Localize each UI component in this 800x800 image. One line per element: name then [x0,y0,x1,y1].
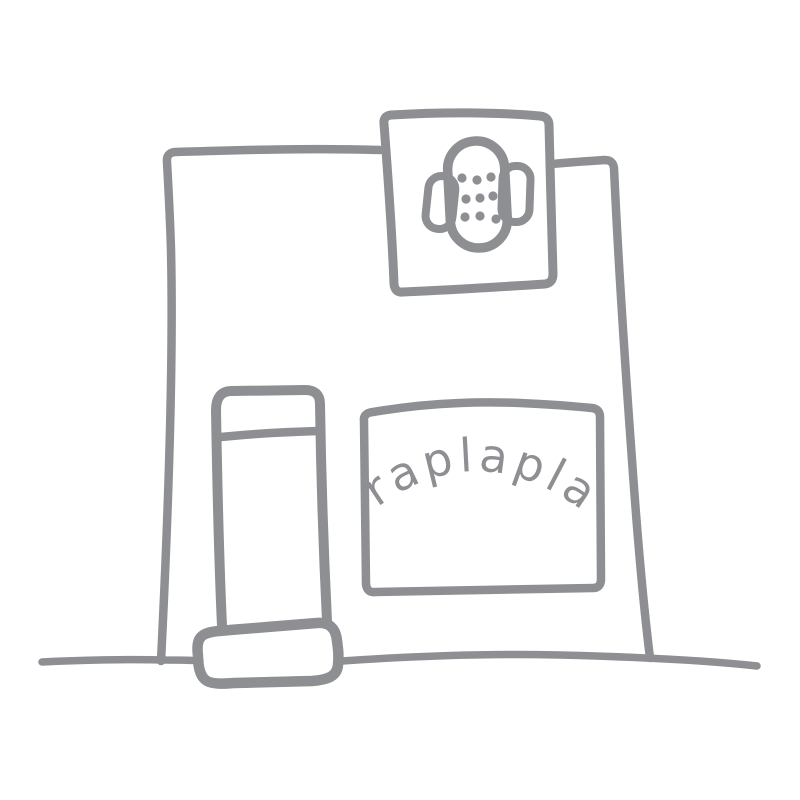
bandage-dot [486,172,495,181]
bandage-dot [488,191,497,200]
ground-line-right [342,654,757,666]
column-outline [216,390,327,626]
ground-line-left [42,660,200,662]
bandage-dot [475,211,484,220]
storefront-drawing: raplapla [0,0,800,800]
bandage-dot [461,194,470,203]
column-top-divider [221,431,318,437]
column-base [197,623,338,684]
bandage-dot [457,173,466,182]
bandage-dot [460,212,469,221]
bandage-dot [475,193,484,202]
shop-name-textpath: raplapla [353,427,610,522]
bandage-dots [457,172,500,223]
bandage-icon [424,140,531,250]
storefront-illustration: raplapla [0,0,800,800]
bandage-dot [491,214,500,223]
bandage-dot [472,175,481,184]
building-left-and-roof-outline [161,149,380,661]
shop-name-text: raplapla [353,427,610,522]
